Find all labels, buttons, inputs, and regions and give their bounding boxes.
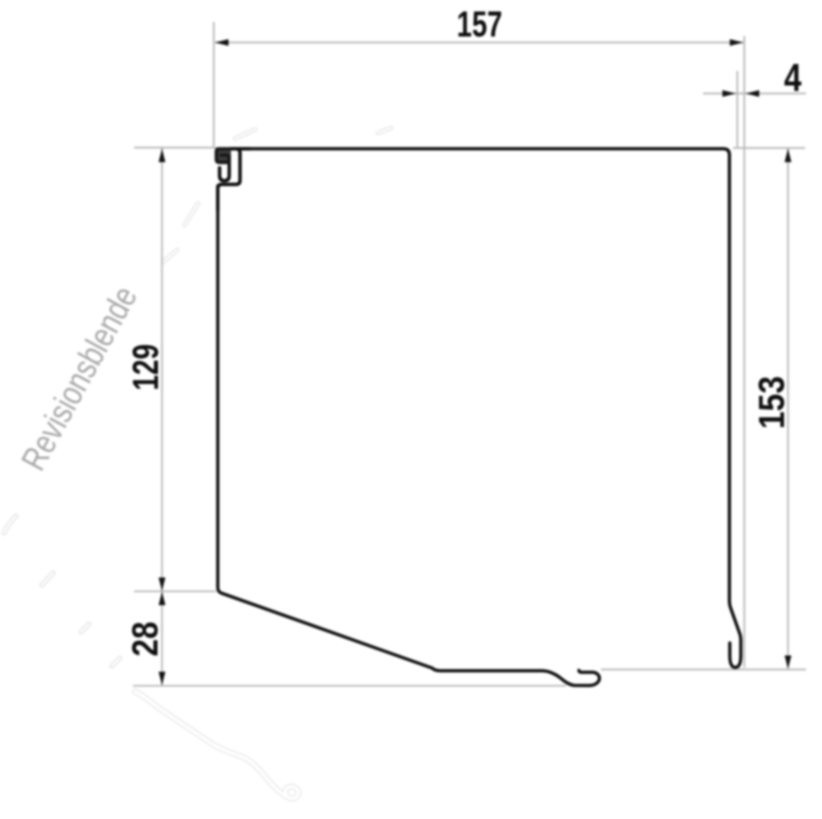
svg-text:4: 4 xyxy=(784,57,802,100)
svg-text:129: 129 xyxy=(125,344,166,391)
svg-text:28: 28 xyxy=(125,622,166,657)
svg-text:153: 153 xyxy=(751,376,792,429)
svg-text:157: 157 xyxy=(457,4,503,45)
